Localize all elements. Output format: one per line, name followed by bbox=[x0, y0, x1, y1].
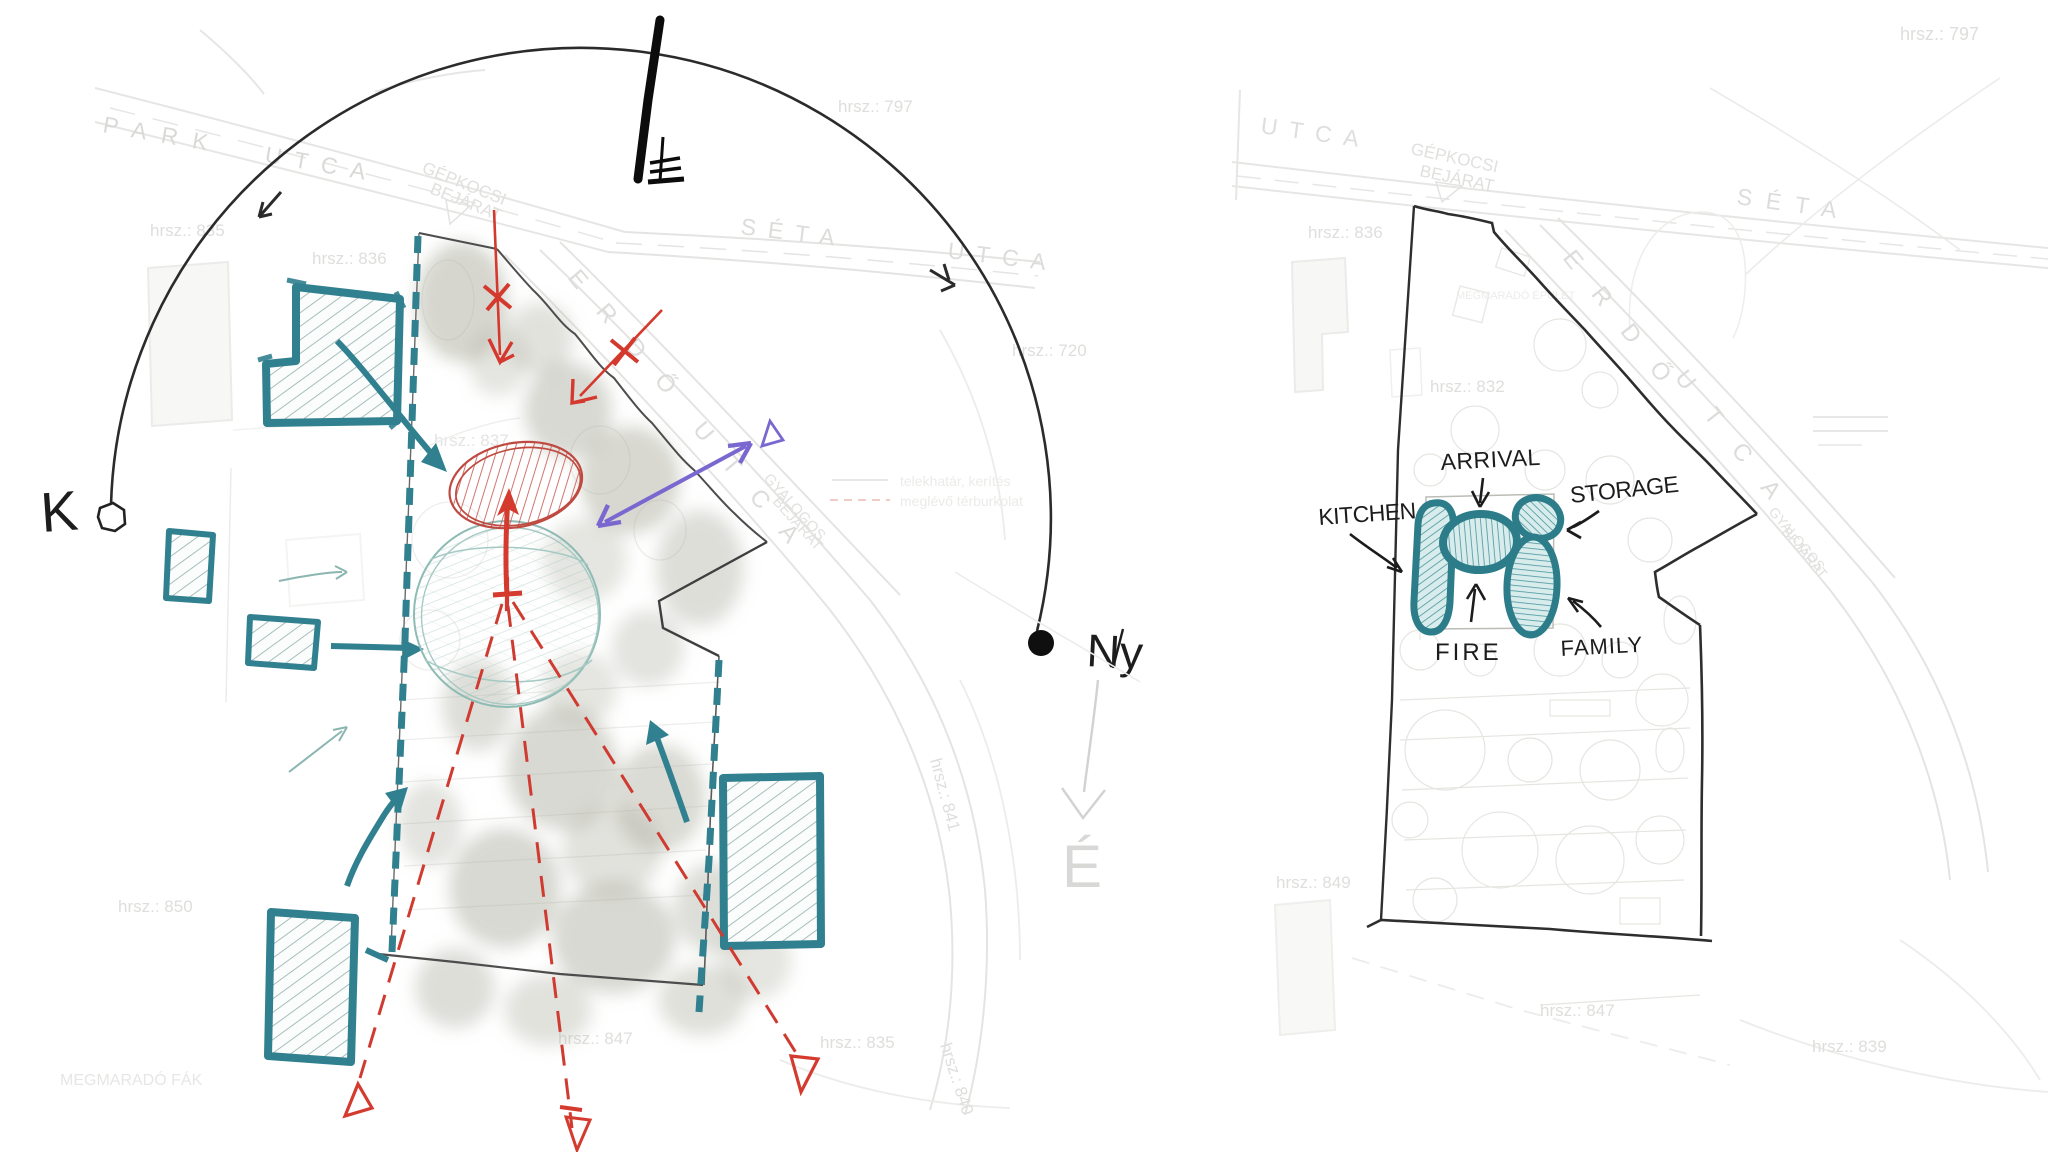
svg-text:hrsz.: 849: hrsz.: 849 bbox=[1276, 873, 1351, 892]
svg-text:hrsz.: 836: hrsz.: 836 bbox=[312, 249, 387, 268]
svg-text:MEGMARADÓ FÁK: MEGMARADÓ FÁK bbox=[60, 1070, 203, 1089]
svg-text:K: K bbox=[38, 479, 80, 544]
svg-text:hrsz.: 797: hrsz.: 797 bbox=[838, 97, 913, 116]
svg-text:hrsz.: 835: hrsz.: 835 bbox=[820, 1033, 895, 1052]
svg-text:meglévő térburkolat: meglévő térburkolat bbox=[900, 493, 1023, 509]
svg-text:hrsz.: 832: hrsz.: 832 bbox=[1430, 377, 1505, 396]
svg-text:hrsz.: 836: hrsz.: 836 bbox=[1308, 223, 1383, 242]
svg-text:telekhatár, kerítés: telekhatár, kerítés bbox=[900, 473, 1011, 489]
svg-text:É: É bbox=[1062, 833, 1102, 900]
svg-text:hrsz.: 839: hrsz.: 839 bbox=[1812, 1037, 1887, 1056]
svg-text:hrsz.: 797: hrsz.: 797 bbox=[1900, 24, 1979, 44]
svg-text:ARRIVAL: ARRIVAL bbox=[1440, 444, 1541, 475]
svg-text:hrsz.: 850: hrsz.: 850 bbox=[118, 897, 193, 916]
svg-text:Ny: Ny bbox=[1085, 624, 1144, 679]
svg-text:FIRE: FIRE bbox=[1435, 639, 1502, 666]
svg-text:FAMILY: FAMILY bbox=[1560, 632, 1644, 661]
